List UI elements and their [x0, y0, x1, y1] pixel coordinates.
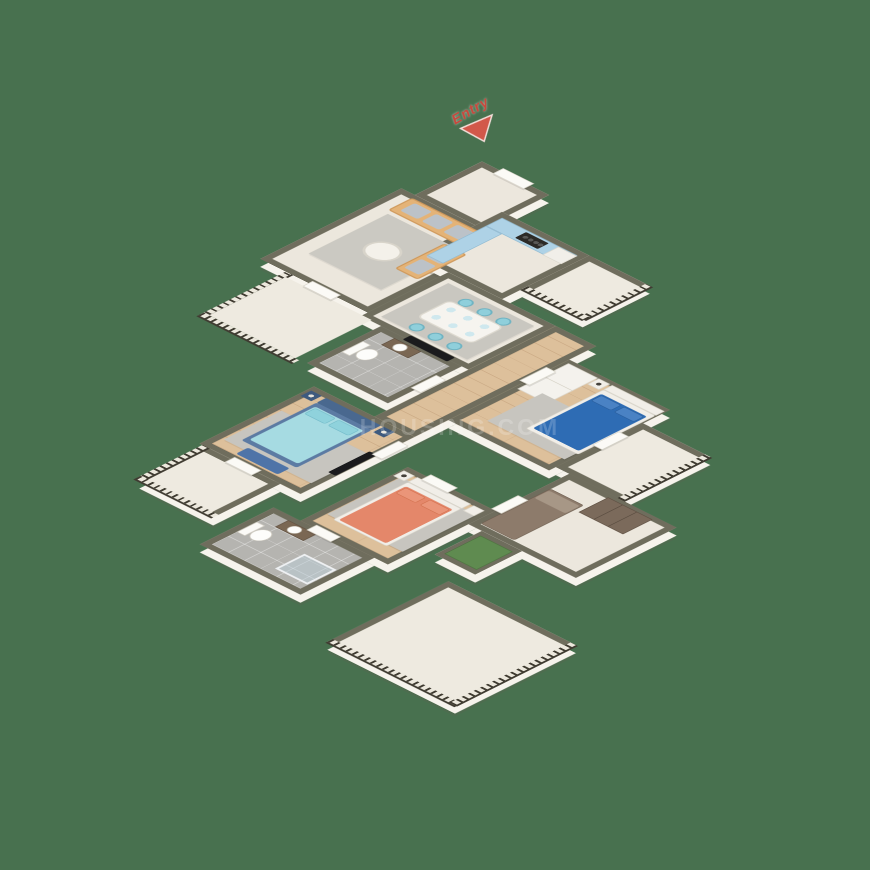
isometric-scene [0, 148, 870, 753]
floorplan-render: Entry HOUSING.COM [0, 0, 870, 870]
room-bottom-balcony [327, 581, 576, 705]
watermark: HOUSING.COM [330, 414, 590, 441]
entry-marker: Entry [448, 93, 508, 156]
